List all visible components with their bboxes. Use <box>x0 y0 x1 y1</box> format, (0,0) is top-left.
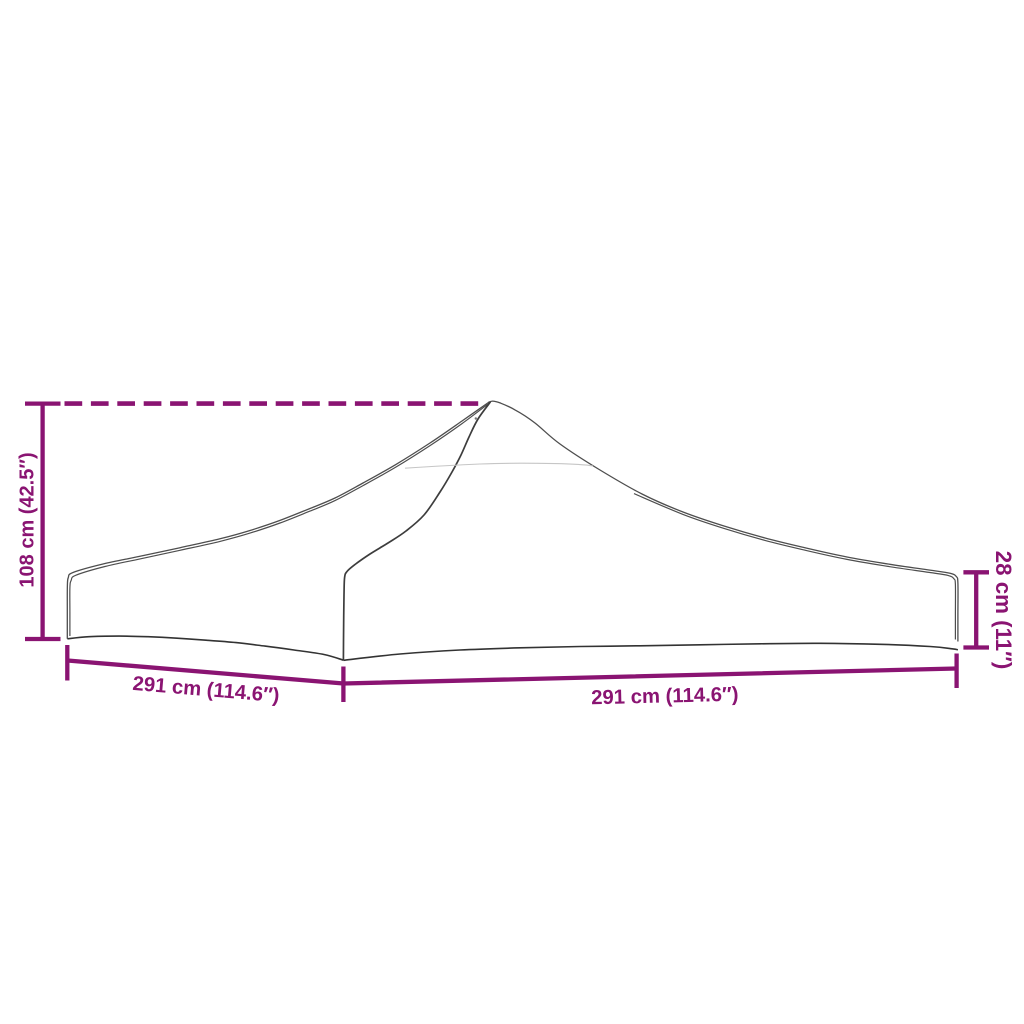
svg-text:108 cm (42.5″): 108 cm (42.5″) <box>17 452 39 587</box>
svg-text:291 cm (114.6″): 291 cm (114.6″) <box>591 684 739 710</box>
svg-text:28 cm (11″): 28 cm (11″) <box>991 551 1016 670</box>
